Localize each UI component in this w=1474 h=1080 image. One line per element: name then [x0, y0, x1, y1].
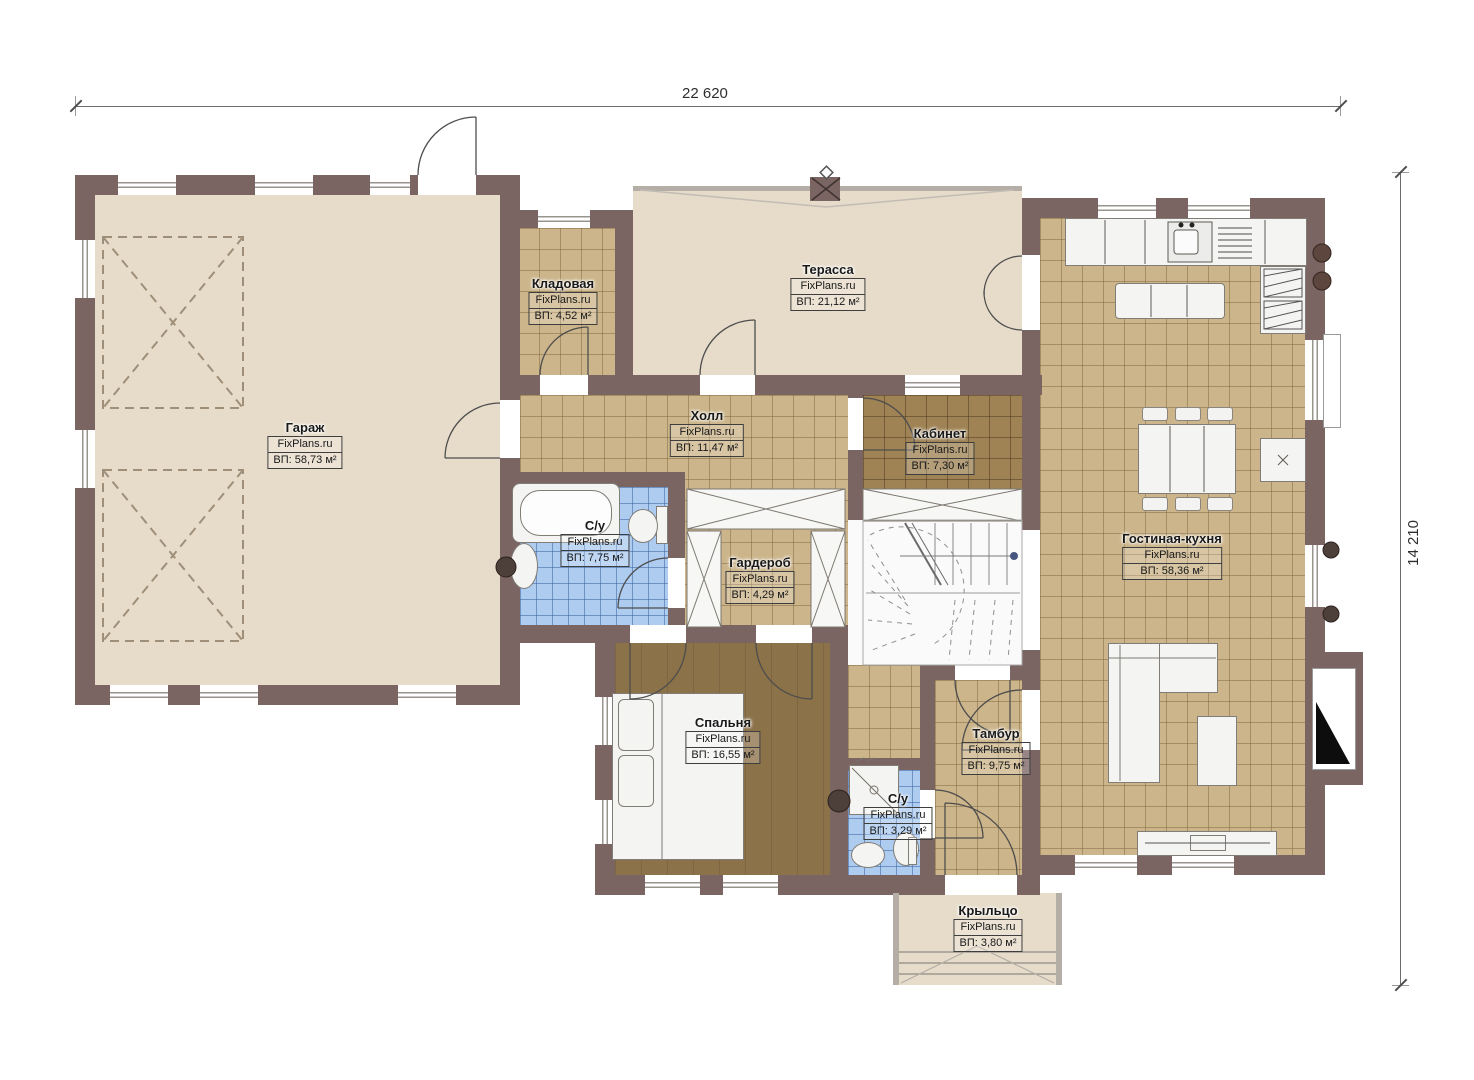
- porch-rail: [893, 893, 899, 985]
- window: [110, 685, 168, 705]
- room-area: ВП: 7,30 м²: [905, 459, 974, 475]
- brand-watermark: FixPlans.ru: [685, 731, 760, 748]
- chair: [1207, 497, 1233, 511]
- tambour-floor: [935, 680, 1022, 875]
- kitchen-unit: [1260, 438, 1306, 482]
- room-label-bathroom1: С/у FixPlans.ru ВП: 7,75 м²: [560, 518, 629, 567]
- window: [1098, 198, 1156, 218]
- room-label-bathroom2: С/у FixPlans.ru ВП: 3,29 м²: [863, 791, 932, 840]
- door-opening: [756, 625, 812, 643]
- door-opening: [1022, 255, 1040, 330]
- window: [723, 875, 778, 895]
- door-opening: [418, 175, 476, 195]
- room-name: Тамбур: [961, 726, 1030, 741]
- dimension-top-value: 22 620: [682, 85, 728, 102]
- door-opening: [668, 558, 685, 608]
- room-label-bedroom: Спальня FixPlans.ru ВП: 16,55 м²: [685, 715, 760, 764]
- brand-watermark: FixPlans.ru: [790, 278, 865, 295]
- window: [538, 210, 590, 228]
- window: [75, 430, 95, 488]
- wall: [615, 210, 633, 393]
- chair: [1175, 497, 1201, 511]
- room-area: ВП: 21,12 м²: [790, 295, 865, 311]
- brand-watermark: FixPlans.ru: [267, 436, 342, 453]
- toilet-bowl: [628, 509, 658, 543]
- room-label-office: Кабинет FixPlans.ru ВП: 7,30 м²: [905, 426, 974, 475]
- kitchen-counter: [1065, 218, 1307, 266]
- brand-watermark: FixPlans.ru: [905, 442, 974, 459]
- room-name: Кладовая: [528, 276, 597, 291]
- door-opening: [500, 400, 520, 458]
- porch-rail: [1056, 893, 1062, 985]
- room-area: ВП: 7,75 м²: [560, 551, 629, 567]
- room-name: Гостиная-кухня: [1122, 531, 1222, 546]
- window: [1075, 855, 1137, 875]
- sofa: [1108, 643, 1160, 783]
- chair: [1142, 407, 1168, 421]
- room-area: ВП: 3,29 м²: [863, 824, 932, 840]
- door-opening: [945, 875, 1017, 895]
- window: [1305, 545, 1325, 607]
- terrace-post: [810, 177, 840, 201]
- door-opening: [848, 398, 863, 450]
- brand-watermark: FixPlans.ru: [961, 742, 1030, 759]
- room-name: Крыльцо: [953, 903, 1022, 918]
- chair: [1142, 497, 1168, 511]
- room-area: ВП: 9,75 м²: [961, 759, 1030, 775]
- room-area: ВП: 16,55 м²: [685, 748, 760, 764]
- door-opening: [700, 375, 755, 395]
- brand-watermark: FixPlans.ru: [1122, 547, 1222, 564]
- door-opening: [540, 375, 588, 395]
- room-area: ВП: 11,47 м²: [670, 441, 744, 457]
- wall: [830, 643, 848, 895]
- window: [370, 175, 410, 195]
- room-label-tambour: Тамбур FixPlans.ru ВП: 9,75 м²: [961, 726, 1030, 775]
- toilet: [908, 837, 917, 865]
- kitchen-counter-side: [1260, 266, 1306, 334]
- window: [118, 175, 176, 195]
- kitchen-island: [1115, 283, 1225, 319]
- room-name: С/у: [863, 791, 932, 806]
- sink: [851, 842, 885, 868]
- room-name: Спальня: [685, 715, 760, 730]
- window: [645, 875, 700, 895]
- room-name: Терасса: [790, 262, 865, 277]
- room-label-garage: Гараж FixPlans.ru ВП: 58,73 м²: [267, 420, 342, 469]
- dimension-right-value: 14 210: [1405, 520, 1422, 566]
- window: [905, 375, 960, 395]
- chair: [1207, 407, 1233, 421]
- window: [255, 175, 313, 195]
- window: [200, 685, 258, 705]
- room-name: Кабинет: [905, 426, 974, 441]
- room-area: ВП: 3,80 м²: [953, 936, 1022, 952]
- room-label-hall: Холл FixPlans.ru ВП: 11,47 м²: [670, 408, 744, 457]
- brand-watermark: FixPlans.ru: [528, 292, 597, 309]
- window: [75, 240, 95, 298]
- room-name: Гардероб: [725, 555, 794, 570]
- window: [398, 685, 456, 705]
- brand-watermark: FixPlans.ru: [953, 919, 1022, 936]
- room-name: Гараж: [267, 420, 342, 435]
- pillow: [618, 755, 654, 807]
- room-area: ВП: 4,52 м²: [528, 309, 597, 325]
- sink: [510, 543, 538, 589]
- room-name: Холл: [670, 408, 744, 423]
- window: [1172, 855, 1234, 875]
- room-label-terrace: Терасса FixPlans.ru ВП: 21,12 м²: [790, 262, 865, 311]
- brand-watermark: FixPlans.ru: [670, 424, 744, 441]
- corridor-floor: [848, 665, 920, 758]
- door-opening: [955, 665, 1010, 680]
- stairs-floor: [848, 520, 1022, 665]
- brand-watermark: FixPlans.ru: [725, 571, 794, 588]
- coffee-table: [1197, 716, 1237, 786]
- wall: [848, 505, 1040, 520]
- dining-table: [1138, 424, 1236, 494]
- tv: [1190, 835, 1226, 851]
- window: [1188, 198, 1250, 218]
- room-label-living-kitchen: Гостиная-кухня FixPlans.ru ВП: 58,36 м²: [1122, 531, 1222, 580]
- floor-plan-canvas: Гараж FixPlans.ru ВП: 58,73 м² Кладовая …: [0, 0, 1474, 1080]
- pillow: [618, 699, 654, 751]
- window-sill: [1323, 334, 1341, 428]
- brand-watermark: FixPlans.ru: [560, 534, 629, 551]
- room-label-storage: Кладовая FixPlans.ru ВП: 4,52 м²: [528, 276, 597, 325]
- room-label-porch: Крыльцо FixPlans.ru ВП: 3,80 м²: [953, 903, 1022, 952]
- room-area: ВП: 4,29 м²: [725, 588, 794, 604]
- wall: [920, 680, 935, 875]
- room-area: ВП: 58,73 м²: [267, 453, 342, 469]
- passage-opening: [1022, 530, 1040, 650]
- door-opening: [630, 625, 686, 643]
- window: [1305, 340, 1325, 420]
- room-name: С/у: [560, 518, 629, 533]
- wall: [1040, 198, 1305, 218]
- room-area: ВП: 58,36 м²: [1122, 564, 1222, 580]
- room-label-wardrobe: Гардероб FixPlans.ru ВП: 4,29 м²: [725, 555, 794, 604]
- chair: [1175, 407, 1201, 421]
- fireplace-niche: [1312, 668, 1356, 770]
- brand-watermark: FixPlans.ru: [863, 807, 932, 824]
